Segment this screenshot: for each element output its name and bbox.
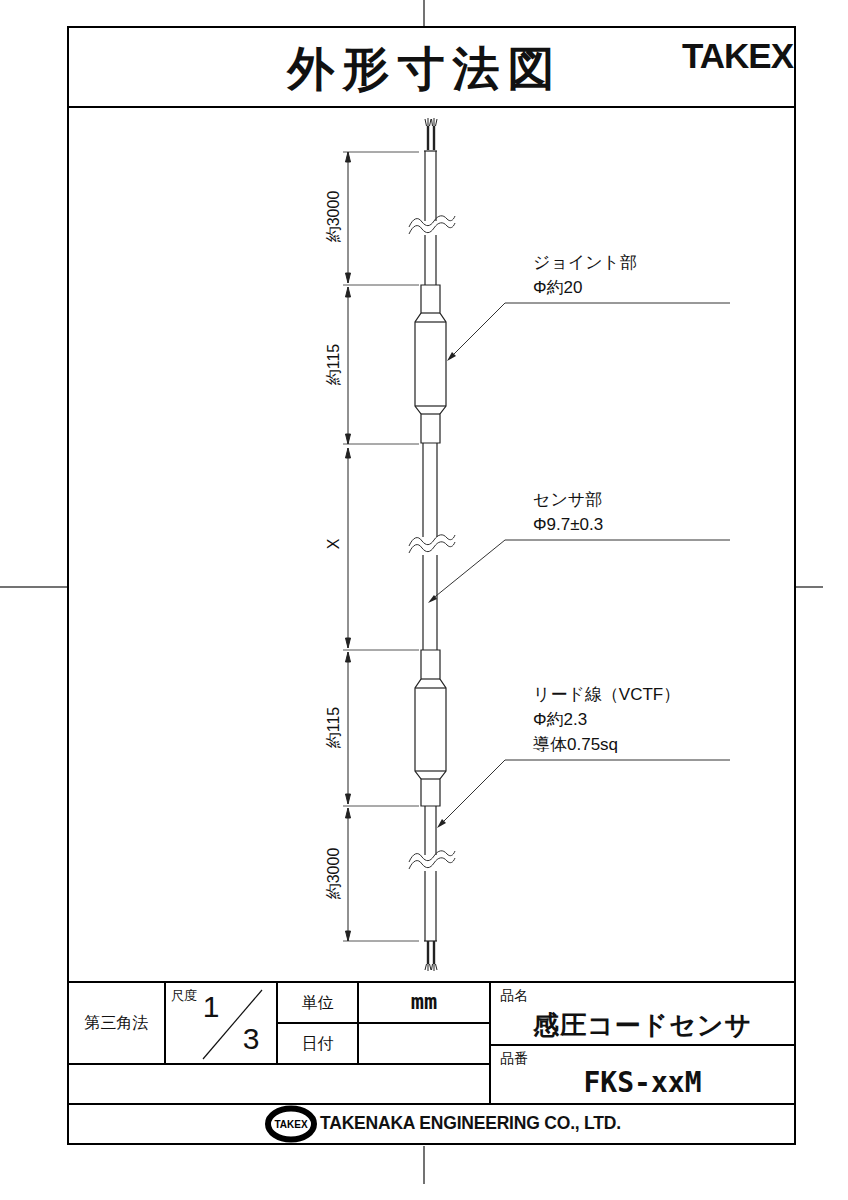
- dimension-lines: [346, 152, 351, 941]
- brand-logo: TAKEX: [655, 36, 793, 76]
- scale-label: 尺度: [171, 987, 197, 1005]
- dim-arrow: [346, 448, 351, 458]
- upper-joint: [415, 285, 446, 443]
- annotation-sensor-dia: Φ9.7±0.3: [533, 512, 603, 537]
- product-name-value: 感圧コードセンサ: [490, 1008, 795, 1043]
- annotation-joint: ジョイント部 Φ約20: [533, 250, 637, 300]
- outer-border: [68, 27, 795, 1144]
- annotation-joint-dia: Φ約20: [533, 275, 637, 300]
- break-symbol-bottom: [409, 851, 455, 869]
- annotation-lead-name: リード線（VCTF）: [533, 682, 680, 707]
- dim-arrow: [346, 638, 351, 648]
- dim-arrow: [346, 273, 351, 283]
- annotation-joint-name: ジョイント部: [533, 250, 637, 275]
- sheet-border-grid: [68, 27, 795, 1144]
- leader-line-joint: [449, 303, 730, 359]
- takex-oval-logo: TAKEX: [268, 1109, 314, 1140]
- product-number-value: FKS-xxM: [490, 1066, 795, 1099]
- annotation-sensor: センサ部 Φ9.7±0.3: [533, 487, 603, 537]
- joint-outline: [415, 650, 446, 806]
- dim-arrow: [346, 931, 351, 941]
- dimension-label-3000-top: 約3000: [324, 157, 345, 277]
- lower-joint: [415, 650, 446, 806]
- dimension-label-115-top: 約115: [324, 305, 345, 425]
- dim-arrow: [346, 152, 351, 162]
- dimension-label-x: X: [325, 484, 343, 604]
- leader-line-lead: [440, 760, 730, 825]
- wire-fray-marks: [425, 964, 437, 971]
- wire-fray-marks: [425, 118, 437, 126]
- joint-outline: [415, 285, 446, 443]
- lead-cable-bottom: [424, 806, 437, 941]
- logo-text: TAKEX: [274, 1119, 307, 1130]
- leader-line-sensor: [431, 540, 730, 600]
- unit-value-cell: mm: [358, 989, 490, 1014]
- lead-cable-top: [424, 151, 437, 285]
- stripped-wires-top: [425, 118, 437, 150]
- dim-arrow: [346, 808, 351, 818]
- dim-arrow: [346, 794, 351, 804]
- projection-cell: 第三角法: [68, 1013, 165, 1034]
- annotation-sensor-name: センサ部: [533, 487, 603, 512]
- dim-arrow: [346, 434, 351, 444]
- product-name-label: 品名: [500, 987, 528, 1005]
- break-symbol-top: [409, 216, 455, 234]
- extension-lines: [343, 152, 419, 941]
- unit-label-cell: 単位: [277, 993, 358, 1014]
- date-label-cell: 日付: [277, 1034, 358, 1055]
- dim-arrow: [346, 652, 351, 662]
- dimension-label-115-bottom: 約115: [324, 668, 345, 788]
- annotation-lead: リード線（VCTF） Φ約2.3 導体0.75sq: [533, 682, 680, 757]
- stripped-wires-bottom: [425, 941, 437, 971]
- annotation-lead-conductor: 導体0.75sq: [533, 732, 680, 757]
- device-drawing: [343, 118, 730, 971]
- company-name: TAKENAKA ENGINEERING CO., LTD.: [320, 1113, 621, 1134]
- drawing-sheet: TAKEX 外形寸法図 TAKEX 約3000 約115 X 約115 約300…: [0, 0, 848, 1200]
- dim-arrow: [346, 287, 351, 297]
- scale-denominator: 3: [236, 1022, 266, 1056]
- annotation-lead-dia: Φ約2.3: [533, 707, 680, 732]
- dimension-label-3000-bottom: 約3000: [324, 814, 345, 934]
- break-symbol-middle: [409, 535, 455, 553]
- scale-numerator: 1: [196, 990, 226, 1024]
